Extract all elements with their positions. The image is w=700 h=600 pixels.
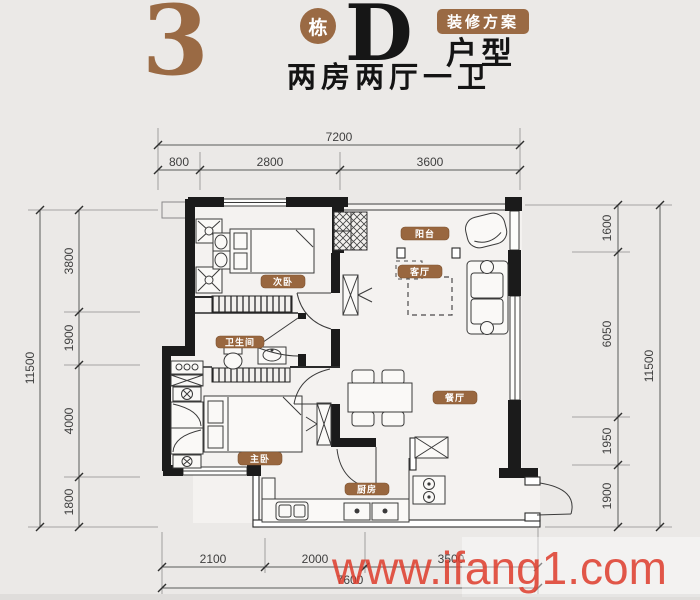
- floorplan-page: 7200 800 2800 3600 11500 3800 1900 4000 …: [0, 0, 700, 600]
- wardrobe-master: [212, 368, 290, 382]
- plant-icon: [351, 212, 367, 250]
- chair-icon: [382, 412, 404, 426]
- dim-right-seg3: 1900: [600, 482, 614, 509]
- room-label-living: 客厅: [398, 265, 442, 278]
- dimensions-right: 1600 6050 1950 1900 11500: [525, 201, 672, 531]
- svg-text:餐厅: 餐厅: [444, 392, 465, 403]
- plant-icon: [334, 212, 351, 231]
- dining-table-icon: [348, 383, 412, 412]
- plant-icon: [334, 231, 351, 250]
- room-label-master: 主卧: [238, 452, 282, 465]
- chair-icon: [352, 412, 374, 426]
- dim-bottom-seg0: 2100: [200, 552, 227, 566]
- dim-left-total: 11500: [23, 351, 37, 384]
- dim-top-total: 7200: [326, 130, 353, 144]
- chair-icon: [382, 370, 404, 384]
- dim-top-seg0: 800: [169, 155, 189, 169]
- wardrobe-bedroom2: [212, 296, 292, 312]
- chair-icon: [352, 370, 374, 384]
- dim-bottom-seg1: 2000: [302, 552, 329, 566]
- svg-text:卫生间: 卫生间: [225, 337, 255, 348]
- room-label-balcony: 阳台: [401, 227, 449, 240]
- dim-right-total: 11500: [642, 349, 656, 382]
- dim-top-seg1: 2800: [257, 155, 284, 169]
- dim-left-seg3: 1800: [62, 488, 76, 515]
- wall-kitchen-left: [253, 470, 259, 527]
- dim-left-seg0: 3800: [62, 247, 76, 274]
- svg-text:客厅: 客厅: [409, 266, 430, 277]
- dim-left-seg2: 4000: [62, 407, 76, 434]
- plan-subtitle: 两房两厅一卫: [287, 54, 491, 96]
- room-label-bedroom2: 次卧: [261, 275, 305, 288]
- room-label-bathroom: 卫生间: [216, 336, 264, 348]
- svg-text:主卧: 主卧: [250, 453, 270, 464]
- closet-icon: [171, 402, 203, 428]
- window-balcony-side: [510, 211, 519, 250]
- dim-top-seg2: 3600: [417, 155, 444, 169]
- door-entrance: [540, 483, 572, 514]
- dim-right-seg2: 1950: [600, 427, 614, 454]
- dim-right-seg0: 1600: [600, 214, 614, 241]
- dimensions-left: 11500 3800 1900 4000 1800: [23, 206, 158, 531]
- room-label-dining: 餐厅: [433, 391, 477, 404]
- svg-text:厨房: 厨房: [357, 484, 377, 495]
- building-unit-badge: 栋: [300, 8, 336, 44]
- svg-text:阳台: 阳台: [415, 228, 435, 239]
- building-number: 3: [142, 0, 209, 97]
- room-label-kitchen: 厨房: [345, 483, 389, 495]
- svg-text:次卧: 次卧: [273, 276, 293, 287]
- dim-right-seg1: 6050: [600, 320, 614, 347]
- dimensions-top: 7200 800 2800 3600: [154, 128, 524, 190]
- dim-left-seg1: 1900: [62, 324, 76, 351]
- closet-icon: [171, 428, 203, 454]
- watermark-text: www.ifang1.com: [332, 541, 667, 595]
